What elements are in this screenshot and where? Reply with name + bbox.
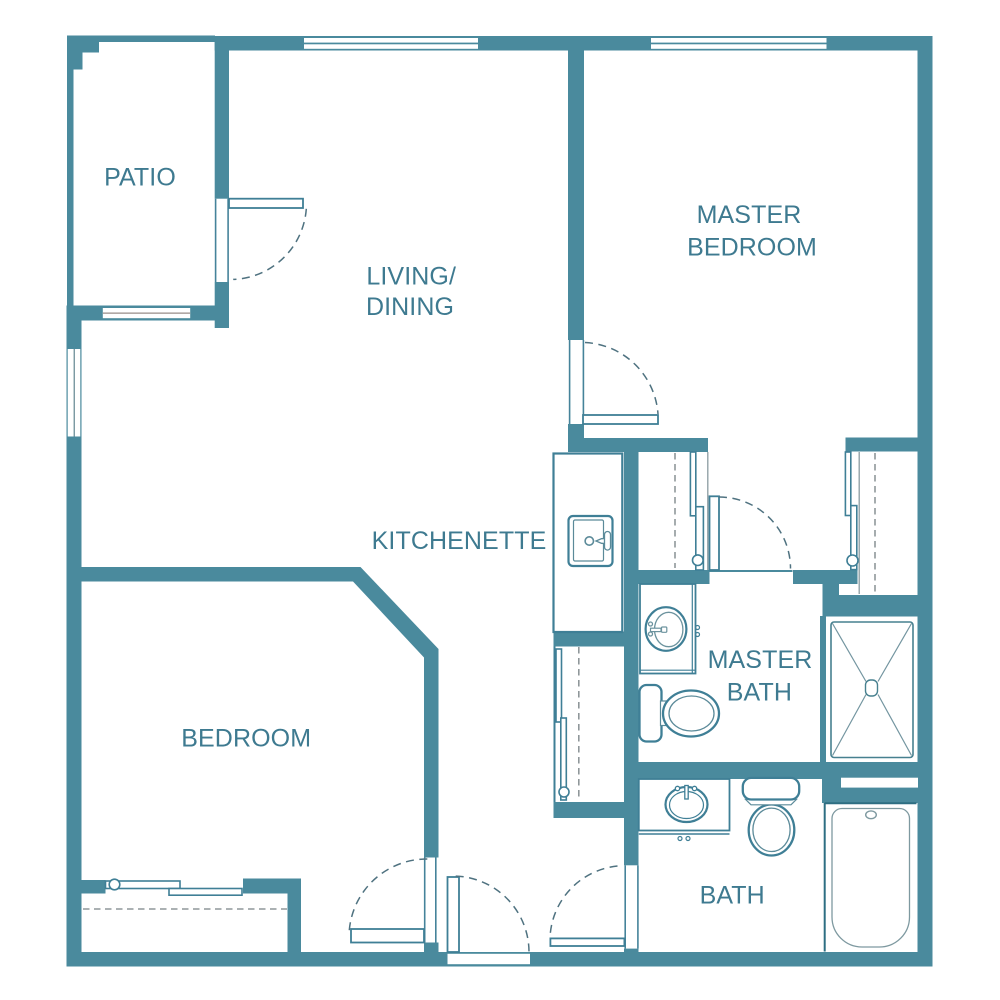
svg-text:MASTER: MASTER: [697, 201, 802, 229]
svg-text:BEDROOM: BEDROOM: [181, 725, 311, 753]
svg-text:BEDROOM: BEDROOM: [687, 233, 817, 261]
svg-text:PATIO: PATIO: [104, 163, 176, 191]
svg-text:BATH: BATH: [727, 679, 792, 707]
svg-text:MASTER: MASTER: [708, 646, 813, 674]
svg-text:LIVING/: LIVING/: [366, 263, 456, 291]
svg-text:DINING: DINING: [366, 293, 454, 321]
svg-text:BATH: BATH: [700, 882, 765, 910]
svg-text:KITCHENETTE: KITCHENETTE: [372, 527, 547, 555]
